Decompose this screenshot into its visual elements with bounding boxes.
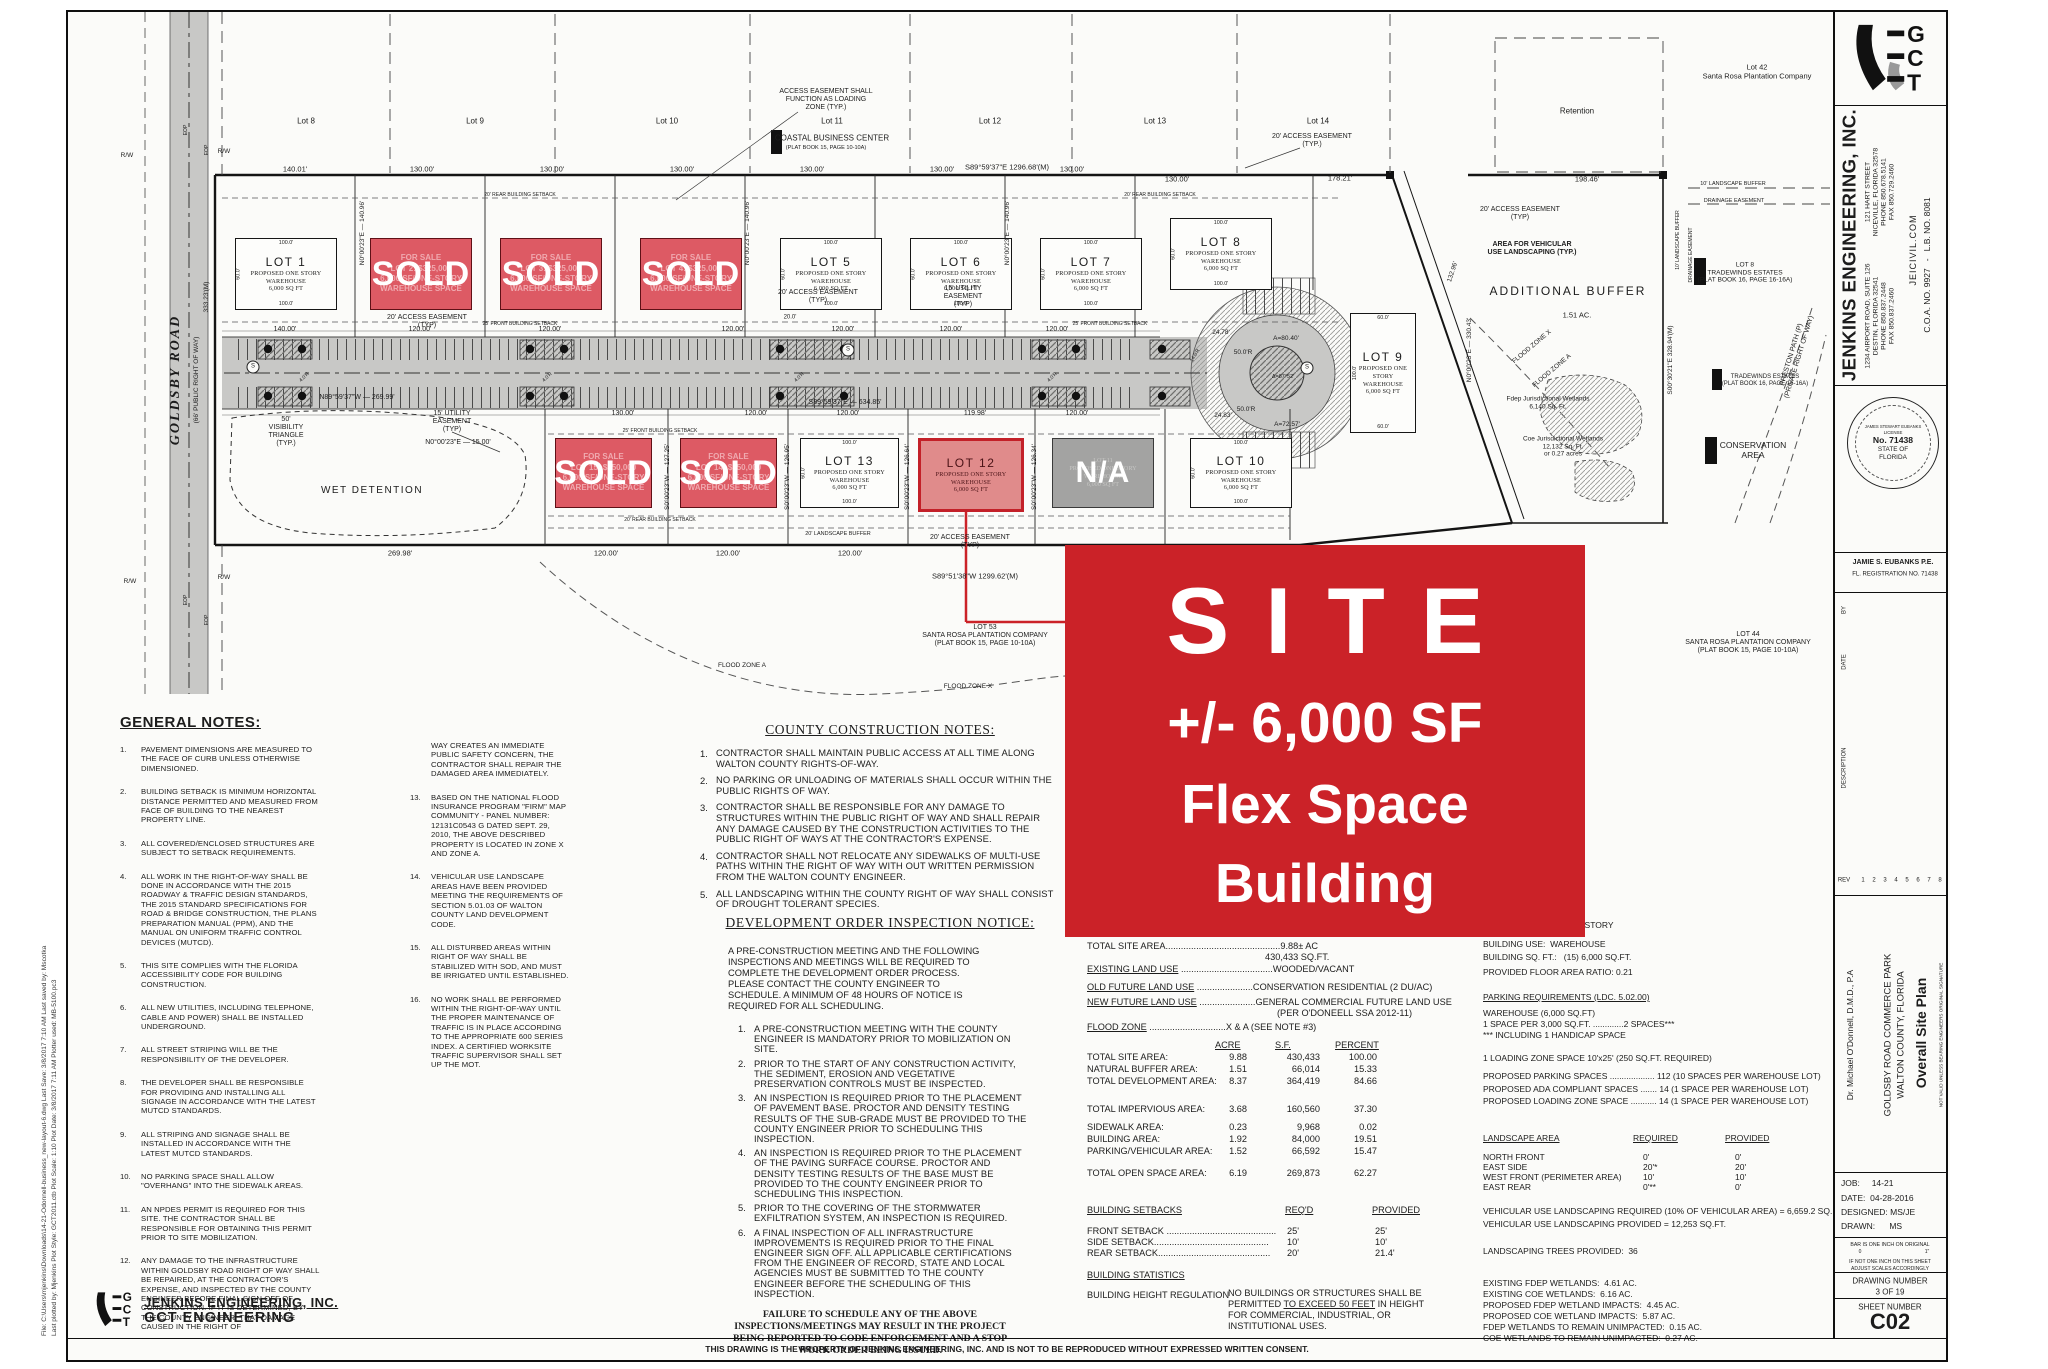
sold-label: SOLD	[502, 253, 600, 296]
dev-order-intro: A PRE-CONSTRUCTION MEETING AND THE FOLLO…	[728, 946, 984, 1012]
note-text: CONTRACTOR SHALL NOT RELOCATE ANY SIDEWA…	[716, 851, 1060, 883]
svg-text:G: G	[1907, 22, 1925, 47]
right-data-line: PROPOSED ADA COMPLIANT SPACES ....... 14…	[1483, 1084, 1809, 1094]
area-table-row: TOTAL DEVELOPMENT AREA:8.37364,41984.66	[1087, 1076, 1217, 1086]
building-height-text: NO BUILDINGS OR STRUCTURES SHALL BE PERM…	[1228, 1288, 1424, 1332]
note-item: 5.PRIOR TO THE COVERING OF THE STORMWATE…	[738, 1203, 1030, 1223]
consent-divider	[66, 1338, 1948, 1339]
dim-side: 60.0'	[1040, 268, 1047, 280]
banner-line-flex: Flex Space	[1181, 772, 1468, 836]
title-block	[1833, 10, 1950, 1338]
site-data-line: OLD FUTURE LAND USE ....................…	[1087, 982, 1432, 992]
lot-subtext: PROPOSED ONE STORY	[251, 270, 322, 278]
landscape-row: EAST SIDE20'*20'	[1483, 1162, 1527, 1172]
lot-subtext: PROPOSED ONE STORY	[926, 270, 997, 278]
note-number: 9.	[120, 1130, 141, 1158]
banner-line-sf: +/- 6,000 SF	[1167, 690, 1482, 756]
firm-stamp: G C T JENKINS ENGINEERING, INC. GCT ENGI…	[92, 1290, 338, 1330]
right-data-line: PROPOSED LOADING ZONE SPACE ........... …	[1483, 1096, 1808, 1106]
area-table-row: NATURAL BUFFER AREA:1.5166,01415.33	[1087, 1064, 1198, 1074]
lot-subtext: WAREHOUSE	[951, 479, 991, 487]
note-number: 15.	[410, 943, 431, 981]
note-number: 14.	[410, 872, 431, 928]
lot-subtext: WAREHOUSE	[811, 278, 851, 286]
note-number: 3.	[700, 802, 716, 844]
gct-logo: G C T	[1845, 22, 1935, 101]
note-text: BASED ON THE NATIONAL FLOOD INSURANCE PR…	[431, 793, 570, 859]
lot-lot-14: FOR SALELOT 14: $350,0006,000 SF/ONE-STO…	[680, 438, 777, 508]
site-data-line: TOTAL SITE AREA.........................…	[1087, 941, 1318, 951]
dim-bottom: 100.0'	[236, 301, 336, 308]
note-number: 4.	[738, 1148, 754, 1199]
right-data-line: VEHICULAR USE LANDSCAPING PROVIDED = 12,…	[1483, 1219, 1726, 1229]
note-number: 8.	[120, 1078, 141, 1116]
note-item: 4.AN INSPECTION IS REQUIRED PRIOR TO THE…	[738, 1148, 1030, 1199]
area-table-row: BUILDING AREA:1.9284,00019.51	[1087, 1134, 1160, 1144]
note-number: 4.	[700, 851, 716, 883]
right-data-line: FDEP WETLANDS TO REMAIN UNIMPACTED: 0.15…	[1483, 1322, 1702, 1332]
note-text: AN INSPECTION IS REQUIRED PRIOR TO THE P…	[754, 1148, 1030, 1199]
right-data-line: PARKING REQUIREMENTS (LDC. 5.02.00)	[1483, 992, 1650, 1002]
right-data-line: PROPOSED COE WETLAND IMPACTS: 5.87 AC.	[1483, 1311, 1675, 1321]
site-data-line: EXISTING LAND USE ......................…	[1087, 964, 1354, 974]
lot-lot-13: 100.0'LOT 13PROPOSED ONE STORYWAREHOUSE6…	[800, 438, 899, 508]
note-item: 3.AN INSPECTION IS REQUIRED PRIOR TO THE…	[738, 1093, 1030, 1144]
dim-top: 100.0'	[801, 440, 898, 447]
svg-text:T: T	[1907, 69, 1921, 95]
note-text: ALL STREET STRIPING WILL BE THE RESPONSI…	[141, 1045, 320, 1064]
dim-bottom: 100.0'	[911, 301, 1011, 308]
setbacks-header: BUILDING SETBACKSREQ'DPROVIDED	[1087, 1205, 1182, 1215]
setbacks-row: FRONT SETBACK ..........................…	[1087, 1226, 1276, 1236]
right-data-line: *** INCLUDING 1 HANDICAP SPACE	[1483, 1030, 1626, 1040]
note-number: 7.	[120, 1045, 141, 1064]
site-banner: SITE +/- 6,000 SF Flex Space Building	[1065, 545, 1585, 937]
note-number: 6.	[738, 1228, 754, 1299]
file-info-line2: Last plotted by: Mjenkins Plot Style: GC…	[50, 946, 60, 1336]
dim-top: 100.0'	[911, 240, 1011, 247]
county-notes-list: 1.CONTRACTOR SHALL MAINTAIN PUBLIC ACCES…	[700, 748, 1060, 910]
stamp-sub-name: GCT ENGINEERING	[144, 1310, 338, 1326]
note-text: ALL LANDSCAPING WITHIN THE COUNTY RIGHT …	[716, 889, 1060, 910]
note-text: CONTRACTOR SHALL MAINTAIN PUBLIC ACCESS …	[716, 748, 1060, 769]
note-text: NO PARKING OR UNLOADING OF MATERIALS SHA…	[716, 775, 1060, 796]
landscape-header: LANDSCAPE AREAREQUIREDPROVIDED	[1483, 1133, 1560, 1143]
lot-title: LOT 13	[825, 454, 874, 469]
note-number: 1.	[738, 1024, 754, 1055]
right-data-line: 1 LOADING ZONE SPACE 10'x25' (250 SQ.FT.…	[1483, 1053, 1712, 1063]
note-text: WAY CREATES AN IMMEDIATE PUBLIC SAFETY C…	[431, 741, 570, 779]
note-item: 6.A FINAL INSPECTION OF ALL INFRASTRUCTU…	[738, 1228, 1030, 1299]
lot-subtext: 6,000 SQ FT	[944, 285, 978, 293]
note-number: 2.	[700, 775, 716, 796]
pe-seal: JAMES STEWART EUBANKS LICENSE No. 71438 …	[1847, 397, 1939, 489]
note-text: A PRE-CONSTRUCTION MEETING WITH THE COUN…	[754, 1024, 1030, 1055]
note-number: 5.	[700, 889, 716, 910]
building-height-label: BUILDING HEIGHT REGULATION	[1087, 1290, 1229, 1300]
right-data-line: VEHICULAR USE LANDSCAPING REQUIRED (10% …	[1483, 1206, 1844, 1216]
note-item: 4.ALL WORK IN THE RIGHT-OF-WAY SHALL BE …	[120, 872, 320, 947]
site-data-line: NEW FUTURE LAND USE ....................…	[1087, 997, 1452, 1007]
lot-subtext: 6,000 SQ FT	[954, 486, 988, 494]
note-item: WAY CREATES AN IMMEDIATE PUBLIC SAFETY C…	[410, 741, 570, 779]
consent-text: THIS DRAWING IS THE PROPERTY OF JENKINS …	[66, 1344, 1948, 1354]
right-data-line: BUILDING SQ. FT.: (15) 6,000 SQ.FT.	[1483, 952, 1631, 962]
area-table-row: TOTAL OPEN SPACE AREA:6.19269,87362.27	[1087, 1168, 1207, 1178]
note-item: 13.BASED ON THE NATIONAL FLOOD INSURANCE…	[410, 793, 570, 859]
lot-subtext: WAREHOUSE	[941, 278, 981, 286]
dev-order-list: 1.A PRE-CONSTRUCTION MEETING WITH THE CO…	[738, 1024, 1030, 1299]
svg-text:T: T	[123, 1316, 131, 1329]
note-text: ALL WORK IN THE RIGHT-OF-WAY SHALL BE DO…	[141, 872, 320, 947]
sold-label: SOLD	[554, 452, 652, 495]
note-number: 13.	[410, 793, 431, 859]
note-number: 6.	[120, 1003, 141, 1031]
sold-label: SOLD	[372, 253, 470, 296]
note-item: 5.THIS SITE COMPLIES WITH THE FLORIDA AC…	[120, 961, 320, 989]
area-table-row: PARKING/VEHICULAR AREA:1.5266,59215.47	[1087, 1146, 1212, 1156]
right-data-line: EXISTING COE WETLANDS: 6.16 AC.	[1483, 1289, 1633, 1299]
right-data-line: LANDSCAPING TREES PROVIDED: 36	[1483, 1246, 1638, 1256]
note-item: 3.CONTRACTOR SHALL BE RESPONSIBLE FOR AN…	[700, 802, 1060, 844]
lot-lot-15: FOR SALELOT 15: $350,0006,000 SF/ONE-STO…	[555, 438, 652, 508]
note-item: 5.ALL LANDSCAPING WITHIN THE COUNTY RIGH…	[700, 889, 1060, 910]
general-notes-title: GENERAL NOTES:	[120, 714, 320, 731]
note-item: 16.NO WORK SHALL BE PERFORMED WITHIN THE…	[410, 995, 570, 1070]
note-item: 9.ALL STRIPING AND SIGNAGE SHALL BE INST…	[120, 1130, 320, 1158]
note-text: A FINAL INSPECTION OF ALL INFRASTRUCTURE…	[754, 1228, 1030, 1299]
lot-lot-2: FOR SALELOT 2: $325,0006,000 SF/ONE-STOR…	[370, 238, 472, 310]
site-data-line: 430,433 SQ.FT.	[1265, 952, 1329, 962]
building-statistics-title: BUILDING STATISTICS	[1087, 1270, 1185, 1280]
lot-subtext: 6,000 SQ FT	[269, 285, 303, 293]
note-item: 3.ALL COVERED/ENCLOSED STRUCTURES ARE SU…	[120, 839, 320, 858]
lot-lot-3: FOR SALELOT 3: $325,0006,000 SF/ONE-STOR…	[500, 238, 602, 310]
dim-side: 60.0'	[235, 268, 242, 280]
lot-lot-4: FOR SALELOT 4: $325,0006,000 SF/ONE-STOR…	[640, 238, 742, 310]
landscape-row: NORTH FRONT0'0'	[1483, 1152, 1545, 1162]
dim-bottom: 100.0'	[801, 499, 898, 506]
landscape-row: EAST REAR0'**0'	[1483, 1182, 1531, 1192]
lot-subtext: 6,000 SQ FT	[832, 484, 866, 492]
note-item: 14.VEHICULAR USE LANDSCAPE AREAS HAVE BE…	[410, 872, 570, 928]
note-text: THIS SITE COMPLIES WITH THE FLORIDA ACCE…	[141, 961, 320, 989]
dim-top: 100.0'	[781, 240, 881, 247]
note-item: 7.ALL STREET STRIPING WILL BE THE RESPON…	[120, 1045, 320, 1064]
note-text: AN NPDES PERMIT IS REQUIRED FOR THIS SIT…	[141, 1205, 320, 1243]
note-number: 2.	[120, 787, 141, 825]
lot-subtext: PROPOSED ONE STORY	[796, 270, 867, 278]
right-data-line: PROPOSED PARKING SPACES ................…	[1483, 1071, 1821, 1081]
lot-lot-5: 100.0'LOT 5PROPOSED ONE STORYWAREHOUSE6,…	[780, 238, 882, 310]
note-number: 16.	[410, 995, 431, 1070]
lot-subtext: WAREHOUSE	[830, 477, 870, 485]
area-table-row: SIDEWALK AREA:0.239,9680.02	[1087, 1122, 1164, 1132]
note-number	[410, 741, 431, 779]
dim-top: 100.0'	[236, 240, 336, 247]
landscape-row: WEST FRONT (PERIMETER AREA)10'10'	[1483, 1172, 1622, 1182]
banner-line-building: Building	[1215, 851, 1435, 915]
dev-order-notice: DEVELOPMENT ORDER INSPECTION NOTICE: A P…	[700, 915, 1060, 1357]
note-number: 1.	[700, 748, 716, 769]
note-item: 2.NO PARKING OR UNLOADING OF MATERIALS S…	[700, 775, 1060, 796]
area-table-row: TOTAL IMPERVIOUS AREA:3.68160,56037.30	[1087, 1104, 1205, 1114]
note-text: CONTRACTOR SHALL BE RESPONSIBLE FOR ANY …	[716, 802, 1060, 844]
svg-text:C: C	[1907, 45, 1923, 71]
general-notes: GENERAL NOTES: 1.PAVEMENT DIMENSIONS ARE…	[120, 714, 320, 1346]
note-text: PRIOR TO THE COVERING OF THE STORMWATER …	[754, 1203, 1030, 1223]
file-info-line1: File: C:\Users\mjenkins\Downloads\14-21-…	[40, 946, 50, 1336]
right-data-line: BUILDING USE: WAREHOUSE	[1483, 939, 1605, 949]
lot-title: LOT 1	[266, 255, 307, 270]
lot-lot-1: 100.0'LOT 1PROPOSED ONE STORYWAREHOUSE6,…	[235, 238, 337, 310]
note-item: 4.CONTRACTOR SHALL NOT RELOCATE ANY SIDE…	[700, 851, 1060, 883]
note-number: 4.	[120, 872, 141, 947]
lot-lot-6: 100.0'LOT 6PROPOSED ONE STORYWAREHOUSE6,…	[910, 238, 1012, 310]
note-text: NO PARKING SPACE SHALL ALLOW "OVERHANG" …	[141, 1172, 320, 1191]
note-number: 3.	[120, 839, 141, 858]
note-item: 1.CONTRACTOR SHALL MAINTAIN PUBLIC ACCES…	[700, 748, 1060, 769]
note-item: 1.A PRE-CONSTRUCTION MEETING WITH THE CO…	[738, 1024, 1030, 1055]
note-text: PAVEMENT DIMENSIONS ARE MEASURED TO THE …	[141, 745, 320, 773]
right-data-line: PROPOSED FDEP WETLAND IMPACTS: 4.45 AC.	[1483, 1300, 1679, 1310]
note-item: 2.BUILDING SETBACK IS MINIMUM HORIZONTAL…	[120, 787, 320, 825]
note-text: ALL NEW UTILITIES, INCLUDING TELEPHONE, …	[141, 1003, 320, 1031]
note-text: NO WORK SHALL BE PERFORMED WITHIN THE RI…	[431, 995, 570, 1070]
site-plan-sheet: 100.0'LOT 1PROPOSED ONE STORYWAREHOUSE6,…	[0, 0, 2048, 1369]
area-table-row: TOTAL SITE AREA:9.88430,433100.00	[1087, 1052, 1168, 1062]
lot-subtext: 6,000 SQ FT	[814, 285, 848, 293]
note-text: ALL DISTURBED AREAS WITHIN RIGHT OF WAY …	[431, 943, 570, 981]
lot-title: LOT 5	[811, 255, 852, 270]
lot-subtext: WAREHOUSE	[266, 278, 306, 286]
right-data-line: EXISTING FDEP WETLANDS: 4.61 AC.	[1483, 1278, 1637, 1288]
stamp-firm-name: JENKINS ENGINEERING, INC.	[144, 1295, 338, 1310]
note-number: 5.	[120, 961, 141, 989]
general-notes-col2: WAY CREATES AN IMMEDIATE PUBLIC SAFETY C…	[410, 741, 570, 1084]
note-text: PRIOR TO THE START OF ANY CONSTRUCTION A…	[754, 1059, 1030, 1090]
right-data-line: PROVIDED FLOOR AREA RATIO: 0.21	[1483, 967, 1633, 977]
file-plot-info: File: C:\Users\mjenkins\Downloads\14-21-…	[40, 946, 60, 1336]
lot-title: LOT 6	[941, 255, 982, 270]
sold-label: SOLD	[679, 452, 777, 495]
gct-logo-small: G C T	[92, 1290, 136, 1330]
site-data-line: (PER O'DONEELL SSA 2012-11)	[1277, 1008, 1412, 1018]
dim-side: 60.0'	[910, 268, 917, 280]
dim-bottom: 100.0'	[781, 301, 881, 308]
note-text: THE DEVELOPER SHALL BE RESPONSIBLE FOR P…	[141, 1078, 320, 1116]
setbacks-row: SIDE SETBACK............................…	[1087, 1237, 1269, 1247]
dim-side: 60.0'	[800, 467, 807, 479]
note-text: ALL STRIPING AND SIGNAGE SHALL BE INSTAL…	[141, 1130, 320, 1158]
lot-subtext: PROPOSED ONE STORY	[814, 469, 885, 477]
lot-lot-12: LOT 12PROPOSED ONE STORYWAREHOUSE6,000 S…	[918, 438, 1024, 512]
site-data-line: FLOOD ZONE .............................…	[1087, 1022, 1316, 1032]
right-data-line: WAREHOUSE (6,000 SQ.FT)	[1483, 1008, 1595, 1018]
lot-title: LOT 12	[947, 456, 996, 471]
note-number: 1.	[120, 745, 141, 773]
svg-text:G: G	[123, 1291, 132, 1304]
note-number: 11.	[120, 1205, 141, 1243]
svg-text:C: C	[123, 1304, 132, 1317]
dim-side: 60.0'	[780, 268, 787, 280]
note-item: 8.THE DEVELOPER SHALL BE RESPONSIBLE FOR…	[120, 1078, 320, 1116]
note-text: VEHICULAR USE LANDSCAPE AREAS HAVE BEEN …	[431, 872, 570, 928]
note-number: 5.	[738, 1203, 754, 1223]
note-text: AN INSPECTION IS REQUIRED PRIOR TO THE P…	[754, 1093, 1030, 1144]
note-text: ALL COVERED/ENCLOSED STRUCTURES ARE SUBJ…	[141, 839, 320, 858]
note-item: 1.PAVEMENT DIMENSIONS ARE MEASURED TO TH…	[120, 745, 320, 773]
note-number: 3.	[738, 1093, 754, 1144]
note-number: 2.	[738, 1059, 754, 1090]
banner-line-site: SITE	[1131, 567, 1520, 675]
note-item: 11.AN NPDES PERMIT IS REQUIRED FOR THIS …	[120, 1205, 320, 1243]
general-notes-col1: 1.PAVEMENT DIMENSIONS ARE MEASURED TO TH…	[120, 745, 320, 1332]
lot-subtext: PROPOSED ONE STORY	[936, 471, 1007, 479]
note-text: BUILDING SETBACK IS MINIMUM HORIZONTAL D…	[141, 787, 320, 825]
sold-label: SOLD	[642, 253, 740, 296]
note-number: 10.	[120, 1172, 141, 1191]
note-item: 10.NO PARKING SPACE SHALL ALLOW "OVERHAN…	[120, 1172, 320, 1191]
note-item: 6.ALL NEW UTILITIES, INCLUDING TELEPHONE…	[120, 1003, 320, 1031]
note-item: 15.ALL DISTURBED AREAS WITHIN RIGHT OF W…	[410, 943, 570, 981]
note-item: 2.PRIOR TO THE START OF ANY CONSTRUCTION…	[738, 1059, 1030, 1090]
right-data-line: 1 SPACE PER 3,000 SQ.FT. .............2 …	[1483, 1019, 1674, 1029]
setbacks-row: REAR SETBACK............................…	[1087, 1248, 1270, 1258]
county-notes-title: COUNTY CONSTRUCTION NOTES:	[700, 722, 1060, 738]
dev-order-title: DEVELOPMENT ORDER INSPECTION NOTICE:	[700, 915, 1060, 931]
county-notes: COUNTY CONSTRUCTION NOTES: 1.CONTRACTOR …	[700, 722, 1060, 916]
